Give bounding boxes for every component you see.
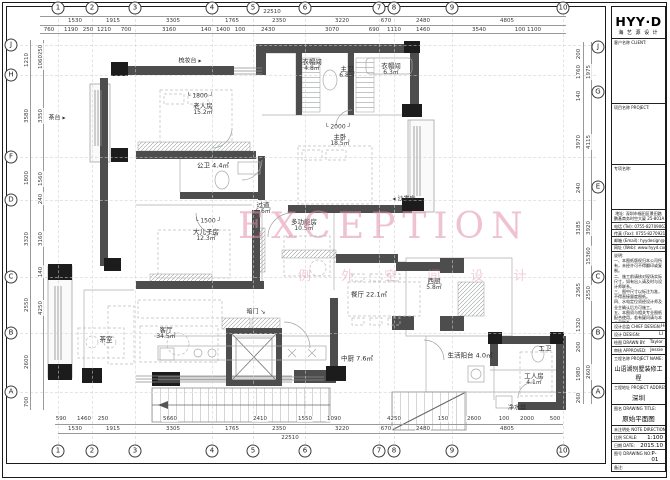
dim-right: 3970 — [576, 134, 582, 150]
dim-top: 4805 — [499, 18, 515, 24]
dim-top: 700 — [120, 27, 133, 33]
dim-right: 140 — [576, 90, 582, 103]
dim-right: 4115 — [586, 134, 592, 150]
grid-bubble-right-G: G — [592, 86, 605, 99]
dim-top: 3305 — [165, 18, 181, 24]
dim-bottom: 3305 — [165, 426, 181, 432]
dim-bottom: 1765 — [224, 426, 240, 432]
room-label: 工人房4.1㎡ — [524, 373, 544, 387]
date-label: 日期 DATE: — [614, 443, 635, 448]
dim-line-top — [40, 16, 566, 17]
dim-line-top — [40, 25, 566, 26]
note-direction-section: 未注明处 NOTE DIRECTION: — [612, 425, 665, 433]
project-address-label: 工程地址 PROJECT ADDRESS: — [614, 385, 663, 390]
dim-bottom: 4250 — [386, 416, 402, 422]
grid-bubble-right-E: E — [592, 181, 605, 194]
subproject-section: 专项名称: — [612, 164, 665, 209]
note-line: 五、本图须与相关专业图纸配合使用，若有疑问请与本公司联系。 — [614, 310, 663, 322]
note-line: 四、水电定位须经设计师及业主确认后方可施工。 — [614, 299, 663, 309]
grid-bubble-bottom-8: 8 — [388, 445, 401, 458]
dim-top: 1190 — [63, 27, 79, 33]
dim-left: 700 — [24, 396, 30, 409]
room-area: 6.3㎡ — [381, 70, 401, 77]
dim-right: 1975 — [586, 64, 592, 80]
grid-bubble-left-A: A — [5, 386, 18, 399]
grid-bubble-top-10: 10 — [557, 2, 570, 15]
credit-value: LI — [659, 332, 663, 338]
grid-bubble-left-C: C — [5, 271, 18, 284]
dim-bottom: 5660 — [162, 416, 178, 422]
dim-top: 100 — [514, 27, 527, 33]
dim-left: 3320 — [24, 231, 30, 247]
dim-bottom: 670 — [380, 426, 393, 432]
dim-right: 1320 — [576, 317, 582, 333]
grid-bubble-bottom-7: 7 — [373, 445, 386, 458]
grid-line-horizontal — [20, 157, 596, 158]
project-address-section: 工程地址 PROJECT ADDRESS: 深圳 — [612, 383, 665, 404]
credit-row: 设计总监 CHIEF DESIGN:Henry — [612, 322, 665, 330]
dim-line-right — [583, 42, 584, 404]
grid-bubble-bottom-4: 4 — [206, 445, 219, 458]
dim-left: 1210 — [24, 52, 30, 68]
contact-row: 网址 (Web): www.hyyd.com — [612, 244, 665, 251]
grid-line-horizontal — [20, 277, 596, 278]
dim-left: 3160 — [38, 231, 44, 247]
dim-bottom: 590 — [55, 416, 68, 422]
project-section: 项目名称 PROJECT: — [612, 103, 665, 164]
grid-bubble-bottom-5: 5 — [247, 445, 260, 458]
dim-left: 2550 — [24, 297, 30, 313]
room-label: 多功能房10.5㎡ — [291, 219, 317, 233]
title-block-logo-section: HYY·D 海 艺 源 设 计 — [612, 7, 665, 38]
grid-line-horizontal — [20, 200, 596, 201]
dim-right: 240 — [576, 182, 582, 195]
dim-bottom: 2600 — [466, 416, 482, 422]
cad-sheet: EXCEPTION 例 外 空 间 设 计 HYY·D 海 艺 源 设 计 客户… — [0, 0, 670, 480]
dim-bottom: 1090 — [326, 416, 342, 422]
dim-top: 100 — [234, 27, 247, 33]
dim-top: 2430 — [260, 27, 276, 33]
room-label: 餐厅 22.1㎡ — [351, 291, 387, 298]
dim-bottom: 100 — [498, 416, 511, 422]
note-direction-label: 未注明处 NOTE DIRECTION: — [614, 427, 663, 432]
dim-left: 1560 — [38, 171, 44, 187]
project-address-value: 深圳 — [614, 390, 663, 404]
dim-left: 1800 — [24, 170, 30, 186]
grid-bubble-bottom-6: 6 — [299, 445, 312, 458]
note-line: 三、图中尺寸以标注为准，不得直接量度图纸。 — [614, 289, 663, 299]
grid-line-vertical — [452, 14, 453, 444]
drawing-title-section: 图名 DRAWING TITLE: 原始平面图 — [612, 404, 665, 425]
dim-left: 3350 — [38, 108, 44, 124]
dim-right: 2550 — [586, 285, 592, 301]
dim-total-top: 22510 — [262, 9, 282, 15]
dim-left: 240 — [38, 193, 44, 206]
project-name-section: 工程名称 PROJECT NAME: 山语湖别墅装修工程 — [612, 354, 665, 383]
grid-bubble-bottom-9: 9 — [446, 445, 459, 458]
room-label: 主卧18.5㎡ — [330, 134, 349, 148]
dim-right: 1980 — [576, 366, 582, 382]
room-label: 公卫 4.4㎡ — [197, 162, 229, 169]
address-section: 地址: 深圳市福田区景田路鹏基商务时空大厦 25-801A — [612, 209, 665, 222]
dim-left: 4250 — [38, 300, 44, 316]
room-area: 6.6㎡ — [255, 209, 271, 216]
grid-bubble-left-D: D — [5, 194, 18, 207]
grid-bubble-right-J: J — [592, 41, 605, 54]
remark-label: 备注: — [614, 465, 663, 470]
room-label: 生活阳台 4.0㎡ — [448, 352, 493, 359]
room-label: 大儿子房12.3㎡ — [193, 229, 219, 243]
room-area: 15.2㎡ — [193, 110, 213, 117]
credit-value: Jessie — [650, 348, 663, 354]
dim-top: 760 — [43, 27, 56, 33]
dim-top: 690 — [368, 27, 381, 33]
dim-top: 3540 — [471, 27, 487, 33]
room-label: 衣帽间6.3㎡ — [381, 63, 401, 77]
drawing-number-row: 图号 DRAWING NO: P-01 — [612, 449, 665, 463]
client-section: 客户名称 CLIENT: — [612, 38, 665, 103]
grid-line-vertical — [92, 14, 93, 444]
dim-line-left — [30, 40, 31, 410]
dim-bottom: 1550 — [297, 416, 313, 422]
grid-bubble-left-B: B — [5, 327, 18, 340]
grid-bubble-top-6: 6 — [299, 2, 312, 15]
credit-row: 设计 DESIGN:LI — [612, 330, 665, 338]
company-logo-sub: 海 艺 源 设 计 — [614, 29, 663, 38]
dim-right: 200 — [576, 48, 582, 61]
annotation-茶台: 茶台 ▸ — [49, 113, 66, 122]
room-label: 主卫6.8㎡ — [339, 66, 355, 80]
grid-bubble-bottom-3: 3 — [129, 445, 142, 458]
grid-bubble-right-C: C — [592, 271, 605, 284]
note-line: 二、施工前请核对现场实际尺寸，如有出入请及时与设计师联系。 — [614, 274, 663, 290]
scale-value: 1:100 — [647, 435, 663, 441]
dim-top: 670 — [380, 18, 393, 24]
date-row: 日期 DATE: 2015.10 — [612, 441, 665, 449]
grid-bubble-top-8: 8 — [388, 2, 401, 15]
dim-line-bottom — [58, 433, 563, 434]
drawing-number-value: P-01 — [651, 451, 663, 463]
dim-right: 260 — [576, 392, 582, 405]
dim-right: 2365 — [576, 282, 582, 298]
dim-line-left — [43, 40, 44, 410]
dim-bottom: 4805 — [499, 426, 515, 432]
credit-value: Henry — [661, 324, 666, 330]
credit-row: 绘图 DRAWN BY:Taylor — [612, 338, 665, 346]
grid-bubble-top-5: 5 — [247, 2, 260, 15]
grid-line-vertical — [563, 14, 564, 444]
grid-line-vertical — [253, 14, 254, 444]
dim-bottom: 500 — [549, 416, 562, 422]
dim-bottom: 250 — [97, 416, 110, 422]
dim-bottom: 1530 — [67, 426, 83, 432]
grid-line-horizontal — [20, 45, 596, 46]
grid-line-vertical — [394, 14, 395, 444]
credit-label: 绘图 DRAWN BY: — [614, 340, 646, 346]
scale-label: 比例 SCALE: — [614, 435, 637, 440]
grid-line-vertical — [135, 14, 136, 444]
drawing-number-label: 图号 DRAWING NO: — [614, 451, 651, 456]
remark-section: 备注: — [612, 463, 665, 471]
room-label: 西厨5.8㎡ — [426, 278, 442, 292]
address-line: 鹏基商务时空大厦 25-801A — [614, 216, 663, 221]
client-label: 客户名称 CLIENT: — [614, 40, 663, 45]
credit-row: 审核 APPROVED:Jessie — [612, 346, 665, 354]
dim-bottom: 1915 — [105, 426, 121, 432]
room-label: 衣帽间4.8㎡ — [302, 59, 322, 73]
room-area: 34.5㎡ — [156, 334, 175, 341]
dim-right: 1760 — [576, 64, 582, 80]
credit-label: 设计 DESIGN: — [614, 332, 640, 338]
subproject-label: 专项名称: — [614, 166, 663, 171]
contact-row: 电话 (Tel): 0755-82709063 — [612, 222, 665, 229]
dim-bottom: 2480 — [415, 426, 431, 432]
grid-bubble-top-1: 1 — [52, 2, 65, 15]
dim-top: 3220 — [334, 18, 350, 24]
grid-bubble-bottom-2: 2 — [86, 445, 99, 458]
room-label: 客厅34.5㎡ — [156, 327, 175, 341]
contact-row: 邮箱 (Email): hyydesign@126.com — [612, 236, 665, 243]
room-label: 茶室 — [100, 336, 113, 343]
grid-bubble-left-H: H — [5, 69, 18, 82]
dim-right: 200 — [576, 341, 582, 354]
dim-line-top — [40, 33, 566, 34]
dim-right: 3185 — [576, 220, 582, 236]
grid-bubble-right-B: B — [592, 327, 605, 340]
dim-bottom: 2410 — [252, 416, 268, 422]
dim-bottom: 1460 — [76, 416, 92, 422]
grid-line-vertical — [379, 14, 380, 444]
room-area: 10.5㎡ — [291, 226, 317, 233]
dim-left: 140 — [38, 266, 44, 279]
annotation-净水器: 净水器 — [508, 403, 526, 412]
grid-line-vertical — [58, 14, 59, 444]
dim-right: 15360 — [586, 246, 592, 266]
credit-label: 设计总监 CHIEF DESIGN: — [614, 324, 661, 330]
scale-row: 比例 SCALE: 1:100 — [612, 433, 665, 441]
dim-top: 1400 — [215, 27, 231, 33]
notes-section: 说明: 一、本图纸版权归本公司所有，未经许可不得翻印或复制。二、施工前请核对现场… — [612, 251, 665, 322]
grid-bubble-bottom-10: 10 — [557, 445, 570, 458]
credits-section: 设计总监 CHIEF DESIGN:Henry设计 DESIGN:LI绘图 DR… — [612, 322, 665, 354]
note-line: 一、本图纸版权归本公司所有，未经许可不得翻印或复制。 — [614, 258, 663, 274]
company-logo: HYY·D — [614, 8, 663, 29]
contact-row: 传真 (Fax): 0755-82709213 — [612, 229, 665, 236]
dim-top: 140 — [200, 27, 213, 33]
room-area: 18.5㎡ — [330, 141, 349, 148]
room-label: 中厨 7.6㎡ — [341, 355, 373, 362]
room-area: 12.3㎡ — [193, 236, 219, 243]
dim-left: 2600 — [24, 354, 30, 370]
grid-line-horizontal — [20, 392, 596, 393]
dim-top: 250 — [82, 27, 95, 33]
project-name-value: 山语湖别墅装修工程 — [614, 362, 663, 383]
dim-top: 3160 — [161, 27, 177, 33]
dim-line-bottom — [55, 424, 563, 425]
room-area: 4.8㎡ — [302, 66, 322, 73]
annotation-梳妆台: 梳妆台 ▸ — [179, 56, 202, 65]
project-label: 项目名称 PROJECT: — [614, 105, 663, 110]
drawing-title-value: 原始平面图 — [614, 411, 663, 425]
dim-total-bottom: 22510 — [280, 435, 300, 441]
room-area: 5.8㎡ — [426, 285, 442, 292]
grid-bubble-top-7: 7 — [373, 2, 386, 15]
dim-top: 1530 — [67, 18, 83, 24]
plan-dim: └ 1800 ┘ — [187, 93, 213, 100]
annotation-沙发床: ◂ 沙发床 — [393, 194, 416, 203]
grid-bubble-top-2: 2 — [86, 2, 99, 15]
dim-top: 1100 — [526, 27, 542, 33]
room-label: 老人房15.2㎡ — [193, 103, 213, 117]
grid-bubble-right-A: A — [592, 386, 605, 399]
dim-left: 1060 — [38, 54, 44, 70]
grid-bubble-left-J: J — [5, 39, 18, 52]
dim-right: 3920 — [586, 220, 592, 236]
plan-dim: └ 1500 ┘ — [195, 218, 221, 225]
title-block: HYY·D 海 艺 源 设 计 客户名称 CLIENT: 项目名称 PROJEC… — [611, 6, 666, 472]
room-area: 6.8㎡ — [339, 73, 355, 80]
project-name-label: 工程名称 PROJECT NAME: — [614, 356, 663, 361]
room-area: 4.1㎡ — [524, 380, 544, 387]
grid-bubble-bottom-1: 1 — [52, 445, 65, 458]
dim-top: 3070 — [324, 27, 340, 33]
dim-bottom: 2350 — [271, 426, 287, 432]
grid-bubble-top-3: 3 — [129, 2, 142, 15]
dim-bottom: 2000 — [519, 416, 535, 422]
plan-dim: └ 2000 ┘ — [325, 124, 351, 131]
room-label: 过道6.6㎡ — [255, 202, 271, 216]
dim-top: 1915 — [105, 18, 121, 24]
dim-left: 3580 — [24, 108, 30, 124]
grid-line-horizontal — [20, 75, 596, 76]
dim-top: 2350 — [271, 18, 287, 24]
grid-bubble-left-F: F — [5, 151, 18, 164]
dim-top: 1460 — [415, 27, 431, 33]
grid-line-horizontal — [20, 333, 596, 334]
credit-label: 审核 APPROVED: — [614, 348, 646, 354]
dim-top: 2480 — [415, 18, 431, 24]
annotation-暗门: 暗门 ↘ — [247, 307, 266, 316]
dim-right: 2600 — [586, 364, 592, 380]
dim-top: 1110 — [386, 27, 402, 33]
grid-bubble-top-4: 4 — [206, 2, 219, 15]
dim-bottom: 150 — [437, 416, 450, 422]
drawing-title-label: 图名 DRAWING TITLE: — [614, 406, 663, 411]
date-value: 2015.10 — [640, 443, 663, 449]
grid-bubble-top-9: 9 — [446, 2, 459, 15]
contact-section: 电话 (Tel): 0755-82709063传真 (Fax): 0755-82… — [612, 222, 665, 251]
dim-top: 1765 — [224, 18, 240, 24]
dim-bottom: 3220 — [334, 426, 350, 432]
room-label: 工卫 — [539, 345, 552, 352]
credit-value: Taylor — [650, 340, 663, 346]
dim-top: 1210 — [96, 27, 112, 33]
